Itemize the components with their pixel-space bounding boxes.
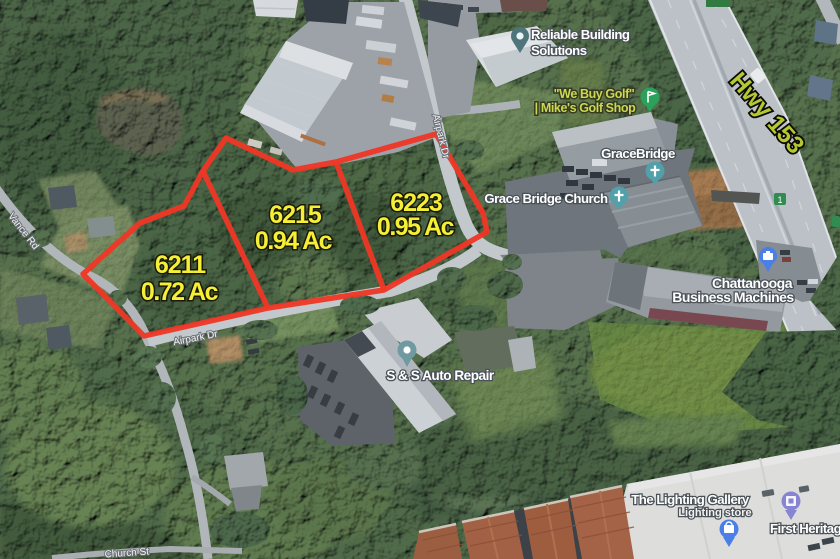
svg-text:0.94 Ac: 0.94 Ac bbox=[255, 227, 333, 255]
svg-text:Grace Bridge Church: Grace Bridge Church bbox=[484, 191, 608, 206]
svg-text:Solutions: Solutions bbox=[531, 43, 587, 58]
svg-text:1: 1 bbox=[777, 195, 782, 205]
svg-text:| Mike's Golf Shop: | Mike's Golf Shop bbox=[535, 101, 636, 115]
svg-text:First Heritag: First Heritag bbox=[770, 521, 840, 536]
svg-text:GraceBridge: GraceBridge bbox=[601, 146, 675, 161]
svg-text:Business Machines: Business Machines bbox=[672, 289, 794, 305]
svg-text:0.72 Ac: 0.72 Ac bbox=[141, 278, 219, 306]
svg-text:Church St: Church St bbox=[104, 546, 149, 559]
svg-text:6211: 6211 bbox=[155, 251, 206, 279]
svg-text:Reliable Building: Reliable Building bbox=[531, 27, 630, 42]
svg-text:0.95 Ac: 0.95 Ac bbox=[377, 213, 455, 241]
svg-text:Lighting store: Lighting store bbox=[678, 507, 751, 519]
svg-text:The Lighting Gallery: The Lighting Gallery bbox=[631, 492, 750, 507]
svg-text:"We Buy Golf": "We Buy Golf" bbox=[554, 87, 635, 101]
svg-text:S & S Auto Repair: S & S Auto Repair bbox=[386, 368, 495, 383]
svg-text:6215: 6215 bbox=[269, 201, 322, 229]
